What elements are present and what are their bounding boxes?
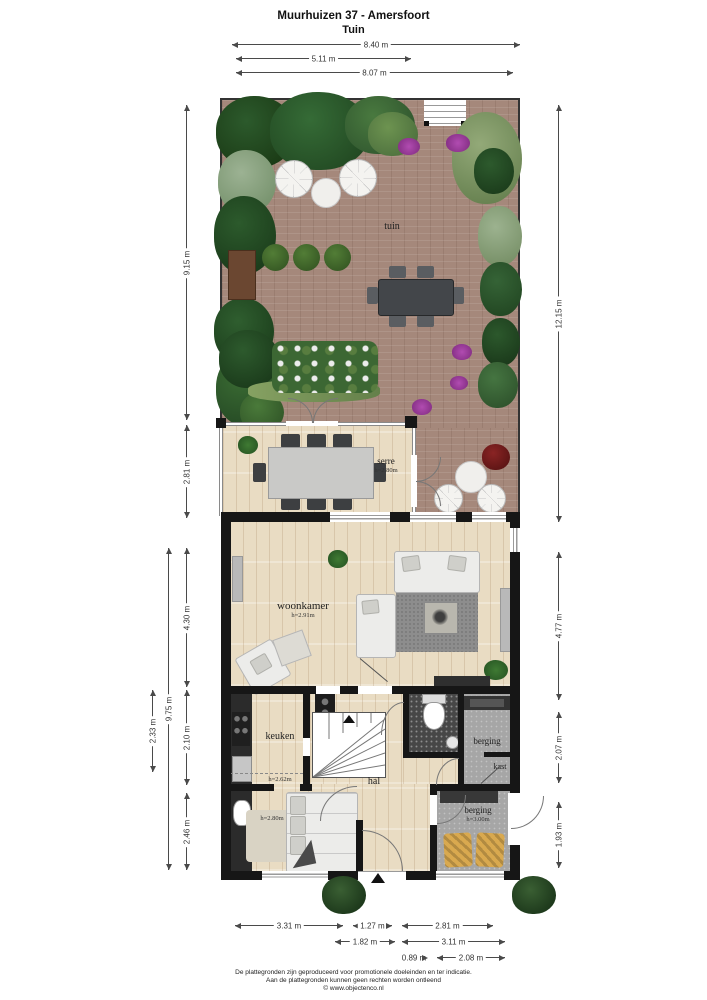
wall-toilet: [403, 752, 464, 758]
dimension-line: 4.77 m: [558, 552, 559, 700]
dimension-line: 2.46 m: [186, 793, 187, 870]
dimension-line: 9.15 m: [186, 105, 187, 420]
dimension-label: 2.33 m: [149, 716, 158, 746]
bed-pillow: [290, 796, 306, 815]
room-height: h=2.91m: [258, 612, 348, 619]
dining-chair: [281, 434, 300, 448]
dimension-label: 1.82 m: [350, 938, 380, 947]
wall-mid: [221, 686, 316, 694]
dining-chair: [307, 434, 326, 448]
flower-cluster: [450, 376, 468, 390]
tv-cabinet: [434, 676, 490, 686]
dimension-label: 5.11 m: [309, 55, 339, 64]
plant: [328, 550, 348, 568]
window: [510, 528, 520, 552]
tree: [512, 876, 556, 914]
dimension-label: 2.10 m: [183, 722, 192, 752]
dining-chair: [333, 434, 352, 448]
stove: [232, 712, 250, 746]
dimension-label: 4.30 m: [183, 602, 192, 632]
shrub: [478, 362, 518, 408]
room-height: h=2.80m: [250, 815, 294, 822]
dimension-line: 3.11 m: [402, 941, 505, 942]
dimension-line: 2.08 m: [437, 957, 505, 958]
window: [330, 512, 390, 522]
room-name: serre: [364, 457, 408, 467]
lounge-chair: [475, 832, 505, 867]
dimension-line: 4.30 m: [186, 548, 187, 687]
gate-post: [424, 121, 429, 126]
page-title: Muurhuizen 37 - Amersfoort: [0, 10, 707, 22]
parasol: [275, 160, 313, 198]
window: [436, 871, 504, 880]
sofa-pillow: [447, 555, 467, 572]
dimension-label: 1.93 m: [555, 820, 564, 850]
garden-chair: [417, 315, 434, 327]
dimension-label: 2.07 m: [555, 732, 564, 762]
parasol: [339, 159, 377, 197]
dimension-line: 8.40 m: [232, 44, 520, 45]
dimension-label: 0.89 m: [399, 954, 429, 963]
shrub: [219, 330, 279, 388]
shrub: [480, 262, 522, 316]
shrub: [482, 318, 520, 366]
dimension-line: 0.89 m: [400, 957, 428, 958]
disclaimer-line1: De plattegronden zijn geproduceerd voor …: [0, 969, 707, 976]
keuken-height-label: h=2.62m: [258, 776, 302, 783]
dimension-line: 12.15 m: [558, 105, 559, 522]
page-subtitle: Tuin: [0, 24, 707, 36]
wall-berging-onder: [430, 825, 437, 871]
dimension-label: 9.15 m: [183, 247, 192, 277]
dimension-label: 3.11 m: [439, 938, 469, 947]
wall-left: [221, 512, 231, 880]
flower-cluster: [398, 138, 420, 155]
dimension-label: 12.15 m: [555, 296, 564, 331]
entrance-arrow: [371, 873, 385, 883]
flower-cluster: [452, 344, 472, 360]
wall-lower: [300, 784, 312, 791]
sofa-pillow: [401, 555, 421, 572]
window: [262, 871, 328, 880]
dimension-line: 2.07 m: [558, 712, 559, 783]
garden-round-table: [311, 178, 341, 208]
garden-chair: [453, 287, 464, 304]
dimension-label: 1.27 m: [357, 922, 387, 931]
room-label-woonkamer: woonkamer h=2.91m: [258, 600, 348, 619]
kamer-height-label: h=2.80m: [250, 815, 294, 822]
room-height: h=3.00m: [448, 816, 508, 823]
room-name: berging: [460, 737, 514, 747]
wall-mid: [340, 686, 358, 694]
garden-gate-steps: [424, 100, 466, 126]
storage-shelf-inner: [470, 699, 504, 707]
flower-cluster: [412, 399, 432, 415]
round-bush: [324, 244, 351, 271]
parasol: [477, 484, 506, 513]
garden-shed: [228, 250, 256, 300]
ceiling-change-line: [230, 773, 303, 774]
garden-chair: [389, 315, 406, 327]
shrub: [474, 148, 514, 194]
serre-glass-wall: [219, 425, 223, 516]
wall-keuken: [303, 756, 310, 784]
round-bush: [293, 244, 320, 271]
radiator: [232, 556, 243, 602]
room-label-hal: hal: [352, 776, 396, 787]
kitchen-sink: [232, 756, 252, 782]
dimension-line: 9.75 m: [168, 548, 169, 870]
room-label-keuken: keuken: [252, 731, 308, 742]
serre-dining-table: [268, 447, 374, 499]
floor-cushion: [288, 840, 316, 868]
dimension-line: 2.33 m: [152, 690, 153, 772]
garden-dining-table: [378, 279, 454, 316]
dimension-label: 8.07 m: [359, 69, 389, 78]
toilet-bowl: [423, 702, 445, 730]
disclaimer-line2: Aan de plattegronden kunnen geen rechten…: [0, 977, 707, 984]
sofa-pillow: [361, 599, 379, 615]
plant: [238, 436, 258, 454]
kast-wall: [484, 752, 511, 757]
wall-keuken: [303, 694, 310, 738]
room-label-berging-boven: berging: [460, 737, 514, 747]
wall-lower: [221, 784, 274, 791]
dimension-label: 3.31 m: [274, 922, 304, 931]
dimension-line: 2.81 m: [402, 925, 493, 926]
dimension-line: 2.10 m: [186, 690, 187, 785]
room-name: woonkamer: [258, 600, 348, 612]
dimension-label: 2.81 m: [183, 456, 192, 486]
room-name: hal: [352, 776, 396, 787]
room-label-serre: serre h=2.80m: [364, 457, 408, 474]
red-plant: [482, 444, 510, 470]
dimension-line: 1.82 m: [335, 941, 395, 942]
dimension-line: 1.93 m: [558, 802, 559, 868]
window: [472, 512, 506, 522]
floorplan-page: Muurhuizen 37 - Amersfoort Tuin 8.40 m 5…: [0, 0, 707, 1000]
wall-lower: [430, 784, 511, 791]
window: [410, 512, 456, 522]
wall-berging-onder: [430, 791, 437, 795]
garden-chair: [367, 287, 378, 304]
room-name: tuin: [370, 221, 414, 232]
room-height: h=2.62m: [258, 776, 302, 783]
staircase: [312, 712, 386, 778]
dimension-label: 2.08 m: [456, 954, 486, 963]
wall-post: [405, 416, 417, 428]
dimension-line: 5.11 m: [236, 58, 411, 59]
garden-chair: [417, 266, 434, 278]
dimension-label: 2.81 m: [432, 922, 462, 931]
dimension-line: 3.31 m: [235, 925, 343, 926]
tree: [322, 876, 366, 914]
dimension-label: 2.46 m: [183, 816, 192, 846]
table-decoration: [432, 609, 448, 625]
round-bush: [262, 244, 289, 271]
wall-mid: [392, 686, 511, 694]
dimension-label: 4.77 m: [555, 611, 564, 641]
dimension-line: 2.81 m: [186, 425, 187, 518]
dimension-label: 8.40 m: [361, 41, 391, 50]
dimension-label: 9.75 m: [165, 694, 174, 724]
wall-post: [216, 418, 226, 428]
dimension-line: 1.27 m: [353, 925, 392, 926]
dining-chair: [253, 463, 266, 482]
copyright: © www.objectenco.nl: [0, 985, 707, 992]
flower-cluster: [446, 134, 470, 152]
room-height: h=2.80m: [364, 467, 408, 474]
dimension-line: 8.07 m: [236, 72, 513, 73]
room-label-tuin: tuin: [370, 221, 414, 232]
garden-chair: [389, 266, 406, 278]
light-bush: [478, 206, 522, 266]
flower-hedge: [272, 341, 378, 393]
lounge-chair: [443, 832, 473, 867]
room-name: keuken: [252, 731, 308, 742]
